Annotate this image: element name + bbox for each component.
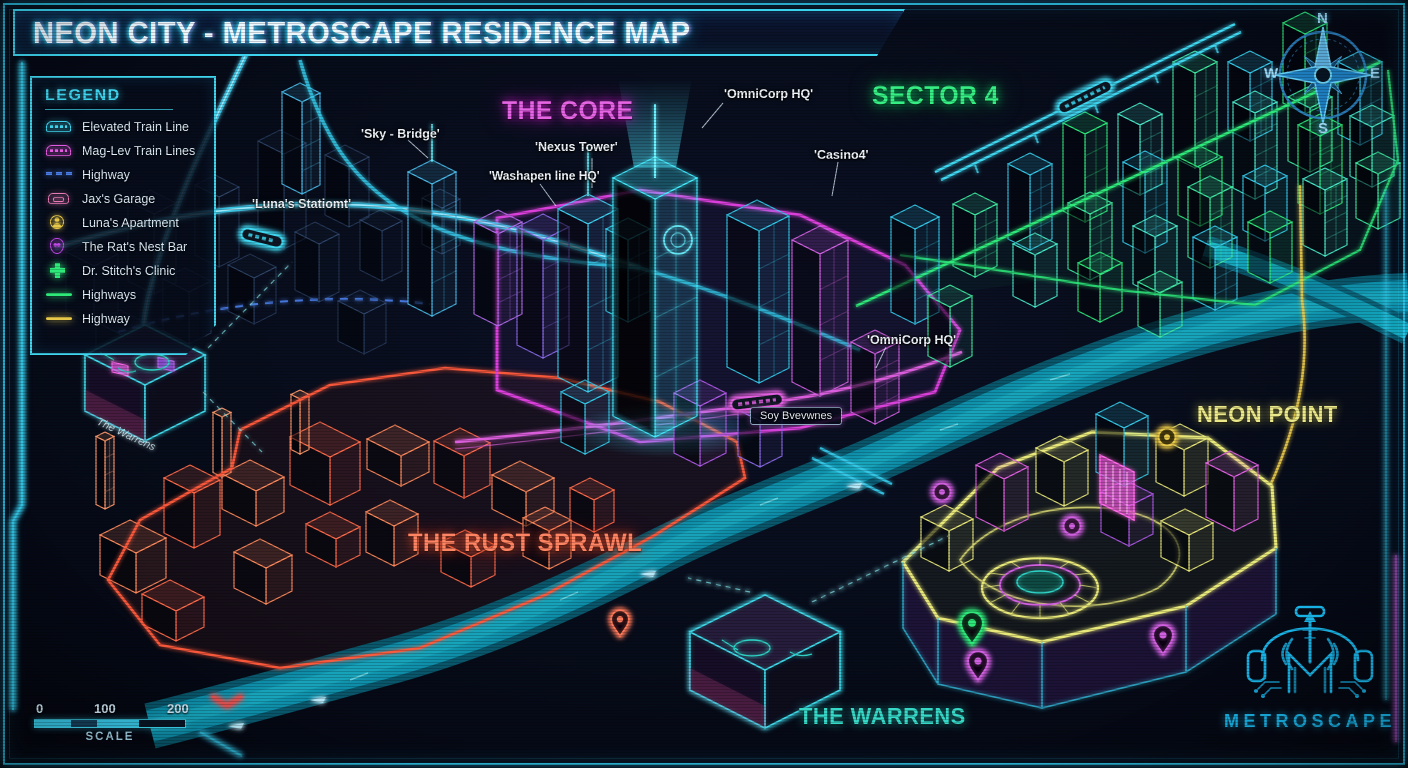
yellow-line-icon: [45, 310, 73, 327]
poi-label-nexus-tower[interactable]: 'Nexus Tower': [535, 139, 618, 154]
green-line-icon: [45, 286, 73, 303]
legend-item-maglev-train: Mag-Lev Train Lines: [45, 142, 202, 159]
scale-tick-labels: 0 100 200: [34, 701, 186, 716]
legend-item-jaxs-garage: Jax's Garage: [45, 190, 202, 207]
district-label-the-core[interactable]: THE CORE: [502, 95, 633, 126]
legend-item-highway-yellow: Highway: [45, 310, 202, 327]
logo-wordmark: METROSCAPE: [1224, 711, 1396, 732]
title-banner: NEON CITY - METROSCAPE RESIDENCE MAP: [13, 9, 905, 56]
district-label-sector-4[interactable]: SECTOR 4: [872, 80, 999, 111]
district-label-rust-sprawl[interactable]: THE RUST SPRAWL: [408, 529, 642, 558]
poi-label-omnicorp-hq-top[interactable]: 'OmniCorp HQ': [724, 86, 813, 101]
scale-tick-0: 0: [36, 701, 43, 716]
compass-south-label: S: [1318, 120, 1328, 137]
poi-label-sky-bridge[interactable]: 'Sky - Bridge': [361, 126, 440, 141]
page-title: NEON CITY - METROSCAPE RESIDENCE MAP: [33, 15, 691, 51]
legend-item-highway-dashed: Highway: [45, 166, 202, 183]
dashed-highway-icon: [45, 166, 73, 183]
poi-label-omnicorp-hq-mid[interactable]: 'OmniCorp HQ': [867, 332, 956, 347]
legend-item-elevated-train: Elevated Train Line: [45, 118, 202, 135]
compass-east-label: E: [1370, 65, 1380, 82]
legend-header: LEGEND: [45, 87, 173, 110]
neon-city-map: The Warrens NEON CITY - METROSCAPE RESID…: [0, 0, 1408, 768]
legend-panel: LEGEND Elevated Train Line Mag-Lev Train…: [30, 76, 216, 355]
poi-label-soy-breweries[interactable]: Soy Bvevwnes: [750, 407, 842, 425]
map-marker[interactable]: [934, 484, 951, 501]
medical-cross-icon: [45, 262, 73, 279]
poi-label-lunas-station[interactable]: 'Luna's Statiomt': [252, 196, 351, 211]
headphones-tower-logo-icon: [1235, 596, 1385, 704]
skull-badge-icon: [45, 238, 73, 255]
maglev-train-icon: [45, 142, 73, 159]
scale-caption: SCALE: [34, 731, 186, 743]
compass-west-label: W: [1264, 65, 1278, 82]
district-label-the-warrens[interactable]: THE WARRENS: [799, 703, 966, 730]
legend-list: Elevated Train Line Mag-Lev Train Lines …: [45, 118, 202, 327]
compass-north-label: N: [1317, 10, 1328, 27]
scale-bar-gauge: [34, 719, 186, 728]
map-marker[interactable]: [1064, 518, 1081, 535]
person-badge-icon: [45, 214, 73, 231]
map-pin[interactable]: [611, 610, 629, 636]
map-marker[interactable]: [1159, 429, 1176, 446]
scale-tick-100: 100: [94, 701, 116, 716]
metroscape-logo: METROSCAPE: [1224, 596, 1396, 732]
legend-item-highways-green: Highways: [45, 286, 202, 303]
scale-bar: 0 100 200 SCALE: [34, 701, 186, 743]
legend-item-dr-stitch-clinic: Dr. Stitch's Clinic: [45, 262, 202, 279]
compass-star-icon: [1273, 25, 1373, 125]
poi-label-casino4[interactable]: 'Casino4': [814, 147, 868, 162]
legend-item-rats-nest-bar: The Rat's Nest Bar: [45, 238, 202, 255]
elevated-train-icon: [45, 118, 73, 135]
car-icon: [45, 190, 73, 207]
poi-label-washapen-line-hq[interactable]: 'Washapen line HQ': [489, 169, 600, 183]
compass-rose: N E S W: [1264, 12, 1382, 138]
scale-tick-200: 200: [167, 701, 189, 716]
legend-item-lunas-apartment: Luna's Apartment: [45, 214, 202, 231]
district-label-neon-point[interactable]: NEON POINT: [1197, 401, 1338, 428]
